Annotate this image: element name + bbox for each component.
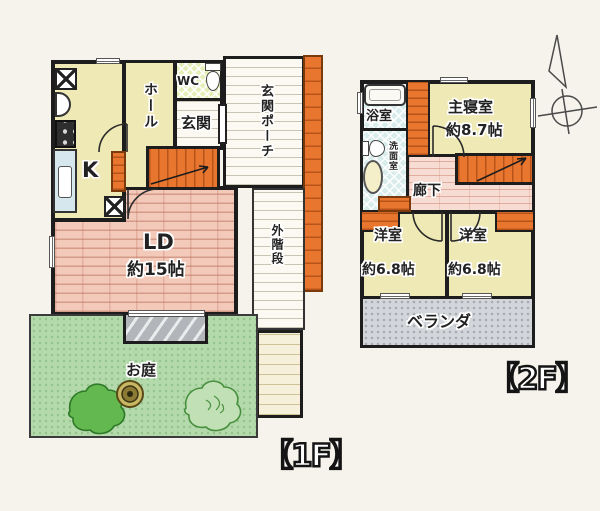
garden-label: お庭 xyxy=(126,359,156,380)
hall-label: ホール xyxy=(140,82,160,130)
window-master-top xyxy=(440,77,468,83)
master-bedroom-size-label: 約8.7帖 xyxy=(446,119,503,140)
washroom-counter-block xyxy=(378,196,411,212)
stove-icon xyxy=(55,120,76,148)
stairs-2f xyxy=(455,153,535,185)
western-right-size-label: 約6.8帖 xyxy=(448,259,501,279)
corridor-label: 廊下 xyxy=(413,180,441,200)
outer-stairs-label: 外階段 xyxy=(269,224,286,266)
sink-icon xyxy=(58,166,72,198)
compass-line-ew xyxy=(538,107,597,116)
front-door-slab xyxy=(218,104,227,144)
ld-size-label: 約15帖 xyxy=(127,255,185,280)
window-bath-left xyxy=(357,92,363,114)
outer-stairs-lower xyxy=(256,330,303,418)
bathtub-icon xyxy=(364,84,406,106)
window-ld-left xyxy=(49,236,55,268)
compass-line-ns xyxy=(562,89,569,134)
kitchen-label: K xyxy=(82,158,98,182)
western-left-size-label: 約6.8帖 xyxy=(362,259,415,279)
floorplan-canvas: K ホール WC 玄関 玄関ポーチ LD 約15帖 外階段 お庭 【1F】 浴室… xyxy=(0,0,600,511)
toilet-tank xyxy=(362,141,369,156)
western-right-label: 洋室 xyxy=(459,225,487,245)
veranda-label: ベランダ xyxy=(407,308,471,332)
kitchen-hatch-icon xyxy=(55,68,77,90)
toilet-tank xyxy=(205,63,221,71)
kitchen-counter-block xyxy=(111,151,126,192)
compass-circle xyxy=(552,96,582,126)
toilet-icon-2f xyxy=(362,139,386,158)
compass-north-arrow xyxy=(549,35,566,87)
kitchen-hatch2-icon xyxy=(104,196,125,217)
toilet-bowl xyxy=(369,140,385,157)
western-left-label: 洋室 xyxy=(374,225,402,245)
washroom-label: 洗面室 xyxy=(386,141,399,171)
window-master-right xyxy=(530,98,536,128)
kitchen-sink-counter xyxy=(53,149,77,213)
window-western-left xyxy=(380,293,410,299)
stairs-1f xyxy=(146,146,220,190)
north-compass-icon xyxy=(538,35,597,134)
floor1-title: 【1F】 xyxy=(262,430,359,475)
bathroom-label: 浴室 xyxy=(366,105,392,124)
closet-western-right xyxy=(495,210,535,232)
window-western-right xyxy=(462,293,492,299)
toilet-icon-1f xyxy=(204,63,222,93)
master-bedroom-label: 主寝室 xyxy=(448,96,493,117)
entrance-porch-label: 玄関ポーチ xyxy=(256,84,275,159)
bathtub-inner xyxy=(369,89,401,101)
closet-master xyxy=(406,80,430,157)
entrance-label: 玄関 xyxy=(181,112,211,133)
ld-label: LD xyxy=(143,230,174,254)
ld-garden-sliding-door xyxy=(128,310,205,317)
toilet-bowl xyxy=(206,71,220,91)
fence-strip xyxy=(303,55,323,292)
vanity-basin-icon xyxy=(363,160,383,194)
wc-label: WC xyxy=(177,74,199,88)
window-kitchen-top xyxy=(96,58,120,64)
floor2-title: 【2F】 xyxy=(488,353,585,398)
